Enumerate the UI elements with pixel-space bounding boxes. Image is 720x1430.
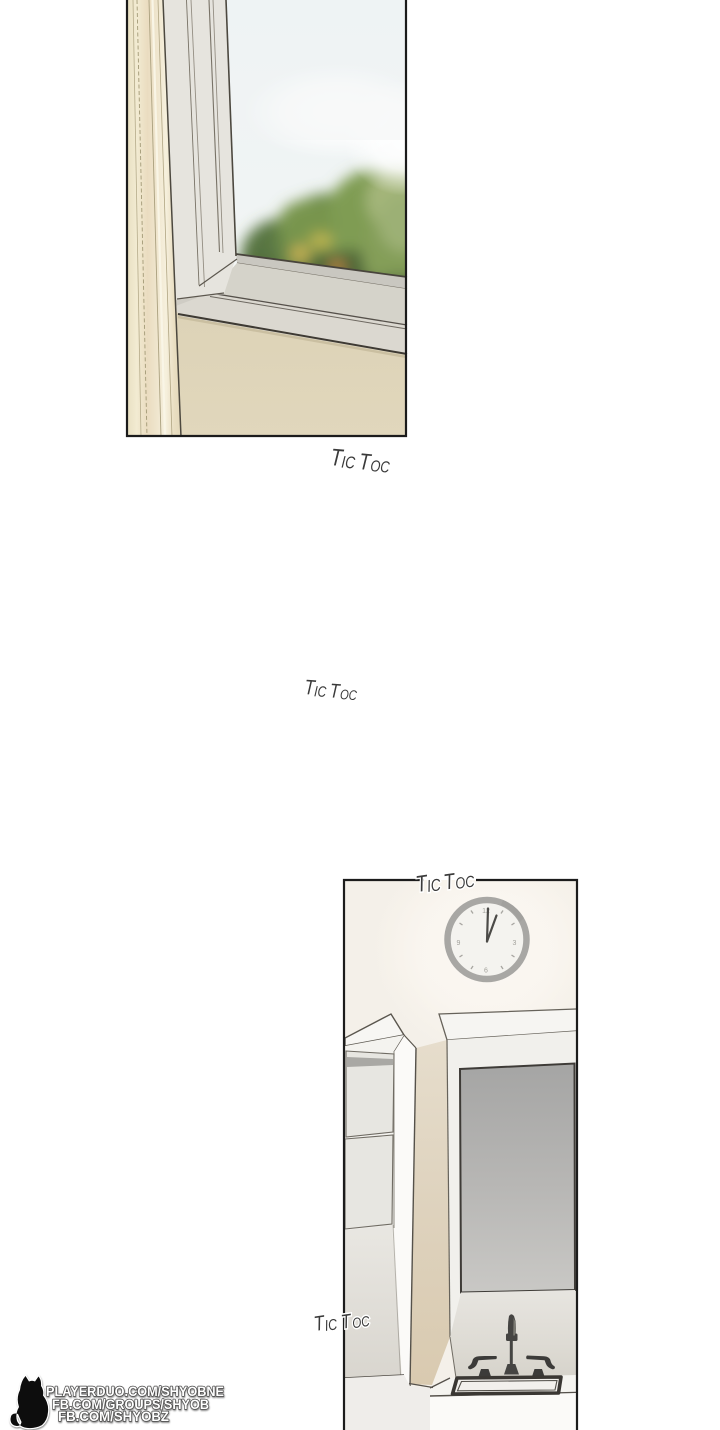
svg-text:OC: OC [454,873,476,893]
svg-text:IC: IC [314,683,327,700]
svg-text:OC: OC [340,687,359,704]
svg-text:6: 6 [484,968,488,975]
svg-text:IC: IC [341,453,357,473]
svg-text:IC: IC [426,876,443,897]
svg-text:FB.COM/SHYOBZ: FB.COM/SHYOBZ [58,1409,169,1424]
svg-text:OC: OC [351,1313,371,1332]
svg-text:OC: OC [370,458,391,477]
svg-text:IC: IC [324,1315,339,1334]
svg-text:9: 9 [457,940,461,947]
svg-text:3: 3 [513,940,517,947]
